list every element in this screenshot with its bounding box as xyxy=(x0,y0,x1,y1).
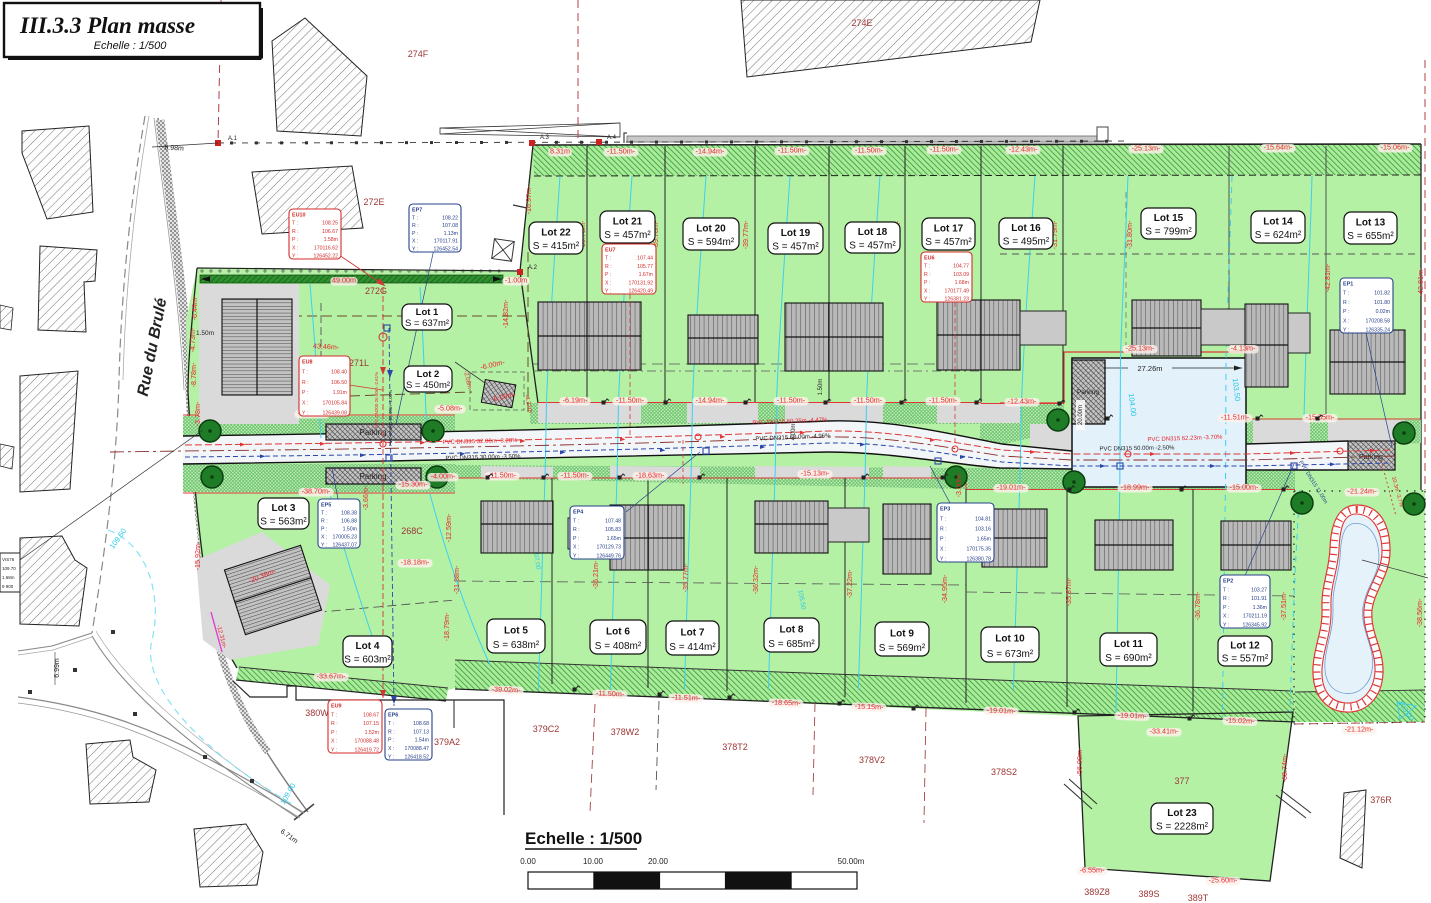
svg-text:104.81: 104.81 xyxy=(975,517,991,523)
svg-text:378V2: 378V2 xyxy=(859,755,885,765)
svg-text:Y :: Y : xyxy=(412,247,418,253)
svg-text:108.25: 108.25 xyxy=(322,221,338,227)
svg-text:-25.60m-: -25.60m- xyxy=(1209,876,1238,885)
svg-text:126335.24: 126335.24 xyxy=(1365,328,1390,334)
svg-text:S = 415m²: S = 415m² xyxy=(533,241,580,252)
svg-text:X :: X : xyxy=(331,739,337,745)
svg-text:Echelle : 1/500: Echelle : 1/500 xyxy=(525,829,642,848)
svg-text:1.65m: 1.65m xyxy=(607,536,621,542)
svg-text:108.40: 108.40 xyxy=(331,370,347,376)
svg-text:EP2: EP2 xyxy=(1223,579,1233,585)
svg-text:-56.99m-: -56.99m- xyxy=(1075,747,1084,776)
svg-text:S = 2228m²: S = 2228m² xyxy=(1156,821,1209,832)
svg-text:S = 624m²: S = 624m² xyxy=(1255,230,1302,241)
svg-text:4.00m: 4.00m xyxy=(791,424,797,441)
svg-text:170175.35: 170175.35 xyxy=(966,547,991,553)
svg-text:X :: X : xyxy=(940,547,946,553)
svg-text:R :: R : xyxy=(331,721,338,727)
svg-text:-11.50m-: -11.50m- xyxy=(777,396,806,405)
svg-text:Y :: Y : xyxy=(388,755,394,761)
svg-text:S = 495m²: S = 495m² xyxy=(1003,236,1050,247)
svg-text:R :: R : xyxy=(573,527,580,533)
svg-text:-21.24m-: -21.24m- xyxy=(1348,487,1377,496)
svg-text:PVC DN200 26.00m -2.61%: PVC DN200 26.00m -2.61% xyxy=(374,372,379,428)
svg-text:X :: X : xyxy=(302,400,308,406)
svg-text:-25.13m-: -25.13m- xyxy=(1126,344,1155,353)
svg-text:Y :: Y : xyxy=(302,411,308,417)
svg-text:-15.02m-: -15.02m- xyxy=(1226,715,1256,725)
svg-text:126419.72: 126419.72 xyxy=(354,748,379,754)
svg-text:170177.49: 170177.49 xyxy=(944,288,969,294)
svg-text:106.50: 106.50 xyxy=(331,380,347,386)
svg-text:A.2: A.2 xyxy=(528,265,538,271)
svg-text:T :: T : xyxy=(573,518,579,524)
svg-text:Lot 6: Lot 6 xyxy=(606,626,630,637)
svg-text:Lot 5: Lot 5 xyxy=(504,625,528,636)
svg-text:S = 685m²: S = 685m² xyxy=(768,639,815,650)
svg-text:A.3: A.3 xyxy=(540,135,550,141)
svg-text:1.50m: 1.50m xyxy=(196,330,214,337)
svg-text:X :: X : xyxy=(321,535,327,541)
svg-text:103.27: 103.27 xyxy=(1251,587,1267,593)
svg-text:R :: R : xyxy=(1223,596,1230,602)
svg-text:Lot 16: Lot 16 xyxy=(1011,223,1041,234)
svg-text:-36.78m-: -36.78m- xyxy=(1193,591,1202,620)
svg-text:-36.32m-: -36.32m- xyxy=(751,565,760,594)
svg-text:105.83: 105.83 xyxy=(605,527,621,533)
svg-text:1.65m: 1.65m xyxy=(977,537,991,543)
svg-text:379A2: 379A2 xyxy=(434,737,460,747)
svg-text:R :: R : xyxy=(940,527,947,533)
svg-text:-35.87m-: -35.87m- xyxy=(1064,577,1073,606)
svg-text:-42.81m-: -42.81m- xyxy=(1323,263,1332,292)
svg-text:X :: X : xyxy=(292,245,298,251)
svg-text:Lot 4: Lot 4 xyxy=(356,641,380,652)
svg-text:S = 563m²: S = 563m² xyxy=(260,516,307,527)
svg-text:S = 603m²: S = 603m² xyxy=(344,654,391,665)
svg-text:Y :: Y : xyxy=(605,289,611,295)
svg-text:-6.44m-: -6.44m- xyxy=(190,295,199,320)
svg-text:1.67m: 1.67m xyxy=(639,272,653,278)
svg-text:126439.08: 126439.08 xyxy=(322,411,347,417)
svg-text:Y :: Y : xyxy=(573,554,579,560)
svg-text:P :: P : xyxy=(388,738,394,744)
svg-text:170129.73: 170129.73 xyxy=(596,545,621,551)
svg-text:T :: T : xyxy=(331,712,337,718)
svg-text:P :: P : xyxy=(302,390,308,396)
svg-text:-19.01m-: -19.01m- xyxy=(997,483,1026,492)
svg-text:274F: 274F xyxy=(408,49,429,59)
svg-text:P :: P : xyxy=(292,237,298,243)
svg-text:106.67: 106.67 xyxy=(322,229,338,235)
svg-text:271L: 271L xyxy=(349,358,369,368)
svg-text:-33.41m-: -33.41m- xyxy=(1150,727,1179,736)
svg-text:126420.49: 126420.49 xyxy=(628,289,653,295)
svg-text:389Z8: 389Z8 xyxy=(1084,887,1110,897)
svg-text:T :: T : xyxy=(412,215,418,221)
svg-text:X :: X : xyxy=(924,288,930,294)
svg-text:S = 457m²: S = 457m² xyxy=(604,230,651,241)
svg-text:-11.50m-: -11.50m- xyxy=(596,688,625,698)
svg-text:Parking: Parking xyxy=(1077,389,1099,396)
svg-text:272E: 272E xyxy=(363,197,384,207)
svg-text:S = 655m²: S = 655m² xyxy=(1347,231,1394,242)
svg-text:170088.47: 170088.47 xyxy=(404,746,429,752)
svg-text:R :: R : xyxy=(412,223,419,229)
svg-text:S = 557m²: S = 557m² xyxy=(1222,654,1269,665)
svg-text:-3.00m-: -3.00m- xyxy=(954,472,963,497)
svg-text:Y :: Y : xyxy=(1223,623,1229,629)
svg-text:-15.55m-: -15.55m- xyxy=(1306,413,1335,422)
svg-text:R :: R : xyxy=(924,272,931,278)
svg-text:P :: P : xyxy=(924,280,930,286)
svg-text:T :: T : xyxy=(292,221,298,227)
svg-text:-37.51m-: -37.51m- xyxy=(1279,591,1288,620)
svg-text:Y :: Y : xyxy=(292,254,298,260)
svg-text:126380.78: 126380.78 xyxy=(966,557,991,563)
svg-text:S = 569m²: S = 569m² xyxy=(879,643,926,654)
svg-text:0.00: 0.00 xyxy=(520,857,536,866)
svg-text:10.00: 10.00 xyxy=(583,857,604,866)
svg-text:378S2: 378S2 xyxy=(991,767,1017,777)
svg-text:Y :: Y : xyxy=(331,748,337,754)
svg-text:268C: 268C xyxy=(401,526,423,536)
svg-text:-6.55m-: -6.55m- xyxy=(1080,866,1105,875)
svg-text:272G: 272G xyxy=(365,286,387,296)
svg-text:Y :: Y : xyxy=(1343,328,1349,334)
svg-text:S = 408m²: S = 408m² xyxy=(595,641,642,652)
svg-text:170116.62: 170116.62 xyxy=(314,245,338,251)
svg-text:Echelle : 1/500: Echelle : 1/500 xyxy=(94,40,168,52)
svg-text:-18.79m-: -18.79m- xyxy=(442,612,451,641)
svg-text:-11.51m-: -11.51m- xyxy=(672,692,701,702)
svg-text:1.52m: 1.52m xyxy=(365,730,379,736)
svg-text:Lot 15: Lot 15 xyxy=(1154,213,1184,224)
svg-text:-12.59m-: -12.59m- xyxy=(444,513,453,542)
svg-text:107.15: 107.15 xyxy=(363,721,379,727)
svg-text:20.00: 20.00 xyxy=(648,857,669,866)
svg-text:Y :: Y : xyxy=(321,543,327,549)
svg-text:R :: R : xyxy=(1343,300,1350,306)
svg-text:-11.51m-: -11.51m- xyxy=(1221,413,1250,422)
svg-text:-31.80m-: -31.80m- xyxy=(1125,220,1134,249)
svg-text:-18.65m-: -18.65m- xyxy=(772,697,802,707)
svg-text:S = 457m²: S = 457m² xyxy=(849,240,896,251)
svg-text:108.67: 108.67 xyxy=(363,712,379,718)
svg-text:Lot 8: Lot 8 xyxy=(780,624,804,635)
svg-text:-11.50m-: -11.50m- xyxy=(854,396,883,405)
svg-text:P :: P : xyxy=(321,527,327,533)
svg-text:-8.78m-: -8.78m- xyxy=(189,362,198,387)
svg-text:Lot 23: Lot 23 xyxy=(1167,808,1197,819)
svg-text:T :: T : xyxy=(940,517,946,523)
svg-text:-19.01m-: -19.01m- xyxy=(1118,710,1148,720)
svg-text:126437.07: 126437.07 xyxy=(332,543,357,549)
svg-text:107.08: 107.08 xyxy=(442,223,458,229)
svg-text:Lot 9: Lot 9 xyxy=(890,628,914,639)
svg-text:EP7: EP7 xyxy=(412,208,422,214)
svg-text:-35.21m-: -35.21m- xyxy=(591,560,600,589)
svg-text:T :: T : xyxy=(924,264,930,270)
svg-text:A.4: A.4 xyxy=(607,135,617,141)
svg-text:R :: R : xyxy=(605,264,612,270)
svg-text:T :: T : xyxy=(321,511,327,517)
svg-text:EU8: EU8 xyxy=(302,360,313,366)
svg-text:-12.43m-: -12.43m- xyxy=(1009,145,1038,154)
svg-text:Y :: Y : xyxy=(924,297,930,303)
svg-text:380W: 380W xyxy=(305,708,329,718)
svg-text:-15.92m-: -15.92m- xyxy=(193,541,202,570)
svg-text:P :: P : xyxy=(1223,605,1229,611)
svg-text:-15.13m-: -15.13m- xyxy=(801,469,830,478)
svg-text:170105.84: 170105.84 xyxy=(322,400,347,406)
svg-text:A.1: A.1 xyxy=(228,136,238,142)
svg-text:1.91m: 1.91m xyxy=(333,390,347,396)
svg-text:20.00m: 20.00m xyxy=(1078,405,1084,425)
svg-text:170208.58: 170208.58 xyxy=(1365,318,1390,324)
svg-text:Y :: Y : xyxy=(940,557,946,563)
svg-text:S = 457m²: S = 457m² xyxy=(772,241,819,252)
svg-text:1.68m: 1.68m xyxy=(955,280,969,286)
svg-text:170211.19: 170211.19 xyxy=(1243,614,1267,620)
svg-text:0.02m: 0.02m xyxy=(1376,309,1390,315)
svg-text:P :: P : xyxy=(940,537,946,543)
svg-text:49.00m: 49.00m xyxy=(332,276,356,285)
svg-text:1.54m: 1.54m xyxy=(415,738,429,744)
svg-text:-25.13m-: -25.13m- xyxy=(1132,144,1161,153)
svg-text:P :: P : xyxy=(605,272,611,278)
svg-text:-18.18m-: -18.18m- xyxy=(401,558,430,567)
svg-text:103.09: 103.09 xyxy=(953,272,969,278)
svg-text:101.80: 101.80 xyxy=(1374,300,1390,306)
svg-text:Lot 10: Lot 10 xyxy=(995,634,1025,645)
svg-text:389T: 389T xyxy=(1188,893,1209,903)
svg-text:-15.15m-: -15.15m- xyxy=(855,701,885,711)
svg-text:X :: X : xyxy=(573,545,579,551)
svg-text:9 900: 9 900 xyxy=(2,584,14,589)
svg-text:Lot 7: Lot 7 xyxy=(681,627,705,638)
svg-text:126418.52: 126418.52 xyxy=(404,755,429,761)
svg-text:103.16: 103.16 xyxy=(975,527,991,533)
svg-text:S = 457m²: S = 457m² xyxy=(925,237,972,248)
svg-text:R :: R : xyxy=(321,519,328,525)
svg-text:8.31m: 8.31m xyxy=(550,147,570,156)
svg-text:101.91: 101.91 xyxy=(1251,596,1267,602)
svg-text:EP6: EP6 xyxy=(388,713,398,719)
svg-text:6.99m: 6.99m xyxy=(54,658,61,678)
svg-text:-15.30m-: -15.30m- xyxy=(399,480,428,489)
svg-text:170117.91: 170117.91 xyxy=(434,239,458,245)
svg-text:107.44: 107.44 xyxy=(637,256,653,262)
svg-text:-18.63m-: -18.63m- xyxy=(636,471,665,480)
svg-text:EU6: EU6 xyxy=(924,256,935,262)
svg-text:-15.00m-: -15.00m- xyxy=(1230,483,1259,492)
svg-text:-14.94m-: -14.94m- xyxy=(696,147,725,156)
svg-text:III.3.3 Plan masse: III.3.3 Plan masse xyxy=(19,13,195,38)
svg-text:-18.99m-: -18.99m- xyxy=(1121,483,1150,492)
svg-text:-31.38m-: -31.38m- xyxy=(452,565,461,594)
svg-text:43,46m-: 43,46m- xyxy=(313,341,340,351)
svg-text:P :: P : xyxy=(1343,309,1349,315)
svg-text:S = 690m²: S = 690m² xyxy=(1105,653,1152,664)
svg-text:S = 637m²: S = 637m² xyxy=(405,318,449,329)
svg-text:EP1: EP1 xyxy=(1343,282,1353,288)
svg-text:1.50m: 1.50m xyxy=(343,527,357,533)
svg-text:107.13: 107.13 xyxy=(413,729,429,735)
svg-text:126381.23: 126381.23 xyxy=(944,297,969,303)
svg-text:379C2: 379C2 xyxy=(533,724,560,734)
svg-text:389S: 389S xyxy=(1138,889,1159,899)
svg-text:X :: X : xyxy=(1343,318,1349,324)
svg-text:-11.50m-: -11.50m- xyxy=(616,396,645,405)
svg-text:X :: X : xyxy=(388,746,394,752)
svg-text:126452.22: 126452.22 xyxy=(313,254,338,260)
svg-text:-11.50m-: -11.50m- xyxy=(607,147,636,156)
svg-text:-4.00m-: -4.00m- xyxy=(431,472,456,481)
svg-text:1.36m: 1.36m xyxy=(1253,605,1267,611)
svg-text:-35.77m-: -35.77m- xyxy=(681,563,690,592)
svg-text:-38.70m-: -38.70m- xyxy=(302,487,331,496)
svg-text:-5.08m-: -5.08m- xyxy=(438,404,463,413)
svg-text:T :: T : xyxy=(388,721,394,727)
svg-text:378T2: 378T2 xyxy=(722,742,748,752)
svg-text:T :: T : xyxy=(605,256,611,262)
svg-text:T :: T : xyxy=(1223,587,1229,593)
svg-text:Lot 2: Lot 2 xyxy=(417,369,440,380)
svg-text:Lot 14: Lot 14 xyxy=(1263,216,1293,227)
svg-text:101.82: 101.82 xyxy=(1374,291,1390,297)
svg-text:Lot 1: Lot 1 xyxy=(416,307,439,318)
svg-text:Parking: Parking xyxy=(359,428,386,437)
svg-text:Lot 17: Lot 17 xyxy=(934,223,964,234)
svg-text:Lot 20: Lot 20 xyxy=(696,223,726,234)
svg-text:-39.77m-: -39.77m- xyxy=(741,220,750,249)
svg-text:-3.78m-: -3.78m- xyxy=(193,401,202,426)
svg-text:-33.67m-: -33.67m- xyxy=(317,672,346,681)
svg-text:105.77: 105.77 xyxy=(637,264,653,270)
svg-text:108.38: 108.38 xyxy=(341,511,357,517)
svg-text:EU7: EU7 xyxy=(605,248,616,254)
svg-text:1.50m: 1.50m xyxy=(818,379,824,396)
svg-text:P :: P : xyxy=(412,231,418,237)
svg-text:P :: P : xyxy=(331,730,337,736)
svg-text:274E: 274E xyxy=(851,18,872,28)
svg-text:Lot 11: Lot 11 xyxy=(1114,639,1143,650)
svg-text:S = 414m²: S = 414m² xyxy=(669,642,716,653)
svg-text:108.68: 108.68 xyxy=(413,721,429,727)
svg-text:X :: X : xyxy=(1223,614,1229,620)
svg-text:-12.43m-: -12.43m- xyxy=(1008,397,1037,406)
svg-text:107.48: 107.48 xyxy=(605,518,621,524)
svg-text:EU9: EU9 xyxy=(331,704,342,710)
svg-text:P :: P : xyxy=(573,536,579,542)
svg-text:-11.50m-: -11.50m- xyxy=(561,471,590,480)
svg-text:-19.01m-: -19.01m- xyxy=(987,705,1017,715)
svg-text:VIS76: VIS76 xyxy=(2,557,15,562)
svg-text:Lot 21: Lot 21 xyxy=(613,216,643,227)
svg-text:PVC DN200 25.00m -1.00%: PVC DN200 25.00m -1.00% xyxy=(388,390,393,446)
svg-text:1.13m: 1.13m xyxy=(444,231,458,237)
svg-text:-39.02m-: -39.02m- xyxy=(492,684,522,694)
svg-text:Parking: Parking xyxy=(1359,454,1383,461)
svg-text:170005.23: 170005.23 xyxy=(332,535,357,541)
svg-text:EP5: EP5 xyxy=(321,503,331,509)
svg-text:-4.13m-: -4.13m- xyxy=(1231,344,1256,353)
svg-text:-21.12m-: -21.12m- xyxy=(1345,725,1374,734)
svg-text:X :: X : xyxy=(412,239,418,245)
svg-text:-6.19m-: -6.19m- xyxy=(563,396,588,405)
svg-text:Lot 22: Lot 22 xyxy=(541,227,571,238)
svg-text:-3.66m-: -3.66m- xyxy=(361,485,370,510)
svg-text:-68.74m-: -68.74m- xyxy=(1280,753,1289,782)
svg-text:-11.50m-: -11.50m- xyxy=(929,396,958,405)
svg-text:-42.81m-: -42.81m- xyxy=(1416,267,1425,296)
svg-text:-14.82m-: -14.82m- xyxy=(501,299,510,328)
svg-text:1.58m: 1.58m xyxy=(324,237,338,243)
svg-text:-16.97m-: -16.97m- xyxy=(524,185,533,214)
svg-text:Lot 19: Lot 19 xyxy=(781,228,811,239)
svg-text:Lot 3: Lot 3 xyxy=(272,503,296,514)
svg-text:T :: T : xyxy=(1343,291,1349,297)
svg-text:Lot 12: Lot 12 xyxy=(1230,641,1260,652)
svg-text:-38.56m-: -38.56m- xyxy=(1415,598,1424,627)
svg-text:108.22: 108.22 xyxy=(442,215,458,221)
svg-text:27.26m: 27.26m xyxy=(1137,364,1162,373)
svg-text:1.68m: 1.68m xyxy=(2,575,15,580)
svg-text:S = 673m²: S = 673m² xyxy=(987,649,1034,660)
svg-text:104.77: 104.77 xyxy=(953,264,969,270)
svg-text:R :: R : xyxy=(292,229,299,235)
svg-text:126452.54: 126452.54 xyxy=(433,247,458,253)
svg-text:378W2: 378W2 xyxy=(611,727,640,737)
svg-text:109.70: 109.70 xyxy=(2,566,16,571)
svg-text:X :: X : xyxy=(605,280,611,286)
svg-text:106.88: 106.88 xyxy=(341,519,357,525)
svg-text:126449.76: 126449.76 xyxy=(596,554,621,560)
svg-text:-15.06m-: -15.06m- xyxy=(1381,143,1410,152)
svg-text:R :: R : xyxy=(388,729,395,735)
svg-text:126345.92: 126345.92 xyxy=(1242,623,1267,629)
svg-text:R :: R : xyxy=(302,380,309,386)
svg-text:-15.64m-: -15.64m- xyxy=(1264,143,1293,152)
svg-text:170131.92: 170131.92 xyxy=(628,280,653,286)
svg-text:-11.50m-: -11.50m- xyxy=(930,145,959,154)
svg-text:170088.48: 170088.48 xyxy=(354,739,379,745)
svg-text:Lot 18: Lot 18 xyxy=(858,227,888,238)
svg-text:377: 377 xyxy=(1174,776,1189,786)
svg-text:376R: 376R xyxy=(1370,795,1392,805)
svg-text:-14.94m-: -14.94m- xyxy=(696,396,725,405)
svg-text:-11.50m-: -11.50m- xyxy=(778,146,807,155)
svg-text:S = 799m²: S = 799m² xyxy=(1145,226,1192,237)
svg-text:-34.95m-: -34.95m- xyxy=(940,574,949,603)
svg-text:Parking: Parking xyxy=(359,472,386,481)
svg-text:EP4: EP4 xyxy=(573,510,583,516)
svg-text:-1.00m: -1.00m xyxy=(505,276,527,285)
svg-text:S = 450m²: S = 450m² xyxy=(406,380,450,391)
svg-text:S = 638m²: S = 638m² xyxy=(493,640,540,651)
svg-text:-37.22m-: -37.22m- xyxy=(845,569,854,598)
svg-text:Lot 13: Lot 13 xyxy=(1356,217,1386,228)
svg-text:T :: T : xyxy=(302,370,308,376)
svg-text:EU10: EU10 xyxy=(292,213,306,219)
svg-text:-11.50m-: -11.50m- xyxy=(855,146,884,155)
svg-text:50.00m: 50.00m xyxy=(838,857,865,866)
svg-text:S = 594m²: S = 594m² xyxy=(688,237,735,248)
svg-text:EP3: EP3 xyxy=(940,507,950,513)
